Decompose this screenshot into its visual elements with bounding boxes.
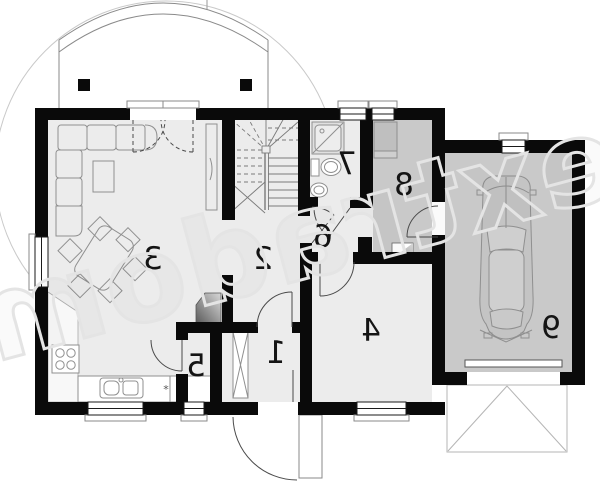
wall-segment	[366, 108, 372, 120]
wall-segment	[525, 140, 572, 153]
window-garage	[499, 133, 528, 153]
room-label-9: 9	[541, 310, 561, 346]
terrace-column	[240, 79, 252, 91]
garage-door-panel	[465, 360, 562, 367]
wall-segment	[204, 402, 258, 415]
wall-segment	[560, 372, 585, 385]
window-kitchen	[85, 402, 146, 421]
kitchen-note-symbol: *	[163, 383, 169, 396]
wall-segment	[143, 402, 184, 415]
wall-segment	[35, 108, 48, 237]
room-label-5: 5	[186, 348, 206, 384]
window-room4	[354, 402, 409, 421]
wall-segment	[35, 287, 48, 415]
floor-plan-page: 1 2 3 4 5 6 7 8 9 * extradom	[0, 0, 600, 485]
terrace-door-sill	[127, 101, 199, 108]
wall-segment	[572, 140, 585, 385]
wall-segment	[196, 108, 340, 120]
wall-segment	[35, 108, 130, 120]
window-left-wall	[29, 234, 48, 290]
utility-cabinet	[374, 122, 397, 158]
wall-segment	[300, 197, 312, 205]
wall-segment	[222, 275, 233, 322]
porch-column	[299, 415, 322, 478]
room-label-6: 6	[313, 219, 333, 255]
wall-segment	[406, 402, 445, 415]
terrace-column	[78, 79, 90, 91]
driveway-slab	[447, 385, 567, 452]
room-label-3: 3	[143, 241, 163, 277]
wall-segment	[445, 140, 502, 153]
wall-segment	[292, 322, 312, 333]
floor-plan-svg: 1 2 3 4 5 6 7 8 9 *	[0, 0, 600, 485]
room-label-1: 1	[266, 335, 286, 371]
room-label-4: 4	[361, 313, 381, 349]
wall-segment	[176, 322, 258, 333]
wardrobe	[233, 332, 248, 398]
wall-segment	[300, 243, 312, 252]
window-room8	[369, 101, 397, 120]
wall-segment	[176, 322, 188, 340]
wall-segment	[358, 237, 372, 264]
wall-segment	[432, 108, 445, 202]
room-label-7: 7	[337, 146, 357, 182]
wall-segment	[35, 402, 88, 415]
car	[477, 176, 536, 342]
window-room5	[181, 402, 207, 421]
window-bathroom	[338, 101, 368, 120]
washbasin	[311, 183, 328, 197]
stove	[52, 345, 79, 373]
wall-segment	[360, 120, 373, 208]
room-label-8: 8	[394, 167, 414, 203]
toilet	[311, 159, 341, 177]
room-label-2: 2	[253, 241, 273, 277]
wall-segment	[300, 252, 312, 415]
wall-segment	[210, 333, 222, 402]
wall-segment	[432, 372, 467, 385]
driveway-gable	[447, 385, 567, 452]
wall-segment	[222, 108, 235, 220]
